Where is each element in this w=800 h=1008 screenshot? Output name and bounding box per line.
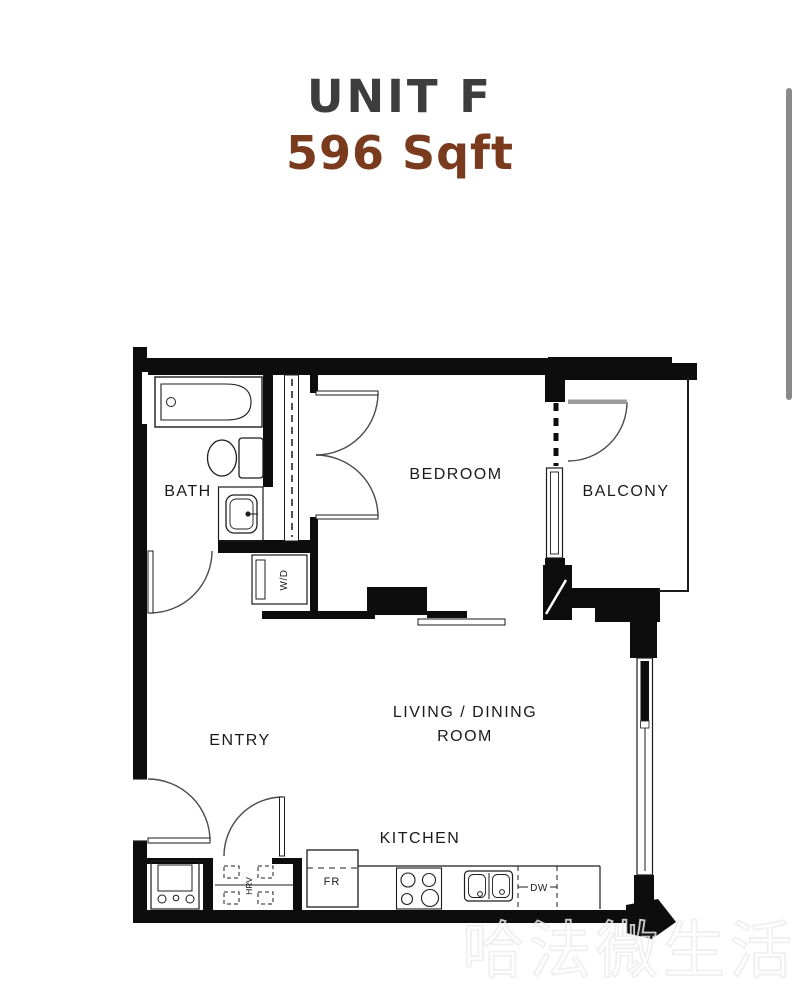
stove xyxy=(397,868,442,909)
room-label-living-dining-line2: ROOM xyxy=(437,728,493,745)
balcony-door-panel xyxy=(568,400,627,405)
room-label-kitchen: KITCHEN xyxy=(380,830,461,847)
kitchen-sink xyxy=(465,871,513,901)
hrv-door-swing xyxy=(224,797,283,856)
fixture-label-fr: FR xyxy=(324,876,341,888)
bathtub xyxy=(155,377,262,427)
toilet xyxy=(208,438,264,478)
living-room-window xyxy=(637,658,653,875)
fixture-label-wd: W/D xyxy=(279,570,290,591)
room-label-balcony: BALCONY xyxy=(583,483,670,500)
bathroom-sink xyxy=(219,487,264,541)
room-labels: BATH BEDROOM BALCONY ENTRY LIVING / DINI… xyxy=(164,466,669,895)
entry-door-panel xyxy=(148,838,210,843)
fixture-label-hrv: HRV xyxy=(244,877,254,895)
hrv-door-panel xyxy=(280,797,285,856)
bedroom-door-swing-top xyxy=(316,393,378,455)
kitchen-counter xyxy=(358,866,600,909)
entry-door-swing xyxy=(148,779,210,841)
scrollbar-thumb[interactable] xyxy=(786,88,792,400)
bedroom-window xyxy=(547,468,563,558)
room-label-living-dining-line1: LIVING / DINING xyxy=(393,704,537,721)
windows xyxy=(547,468,653,875)
floorplan: BATH BEDROOM BALCONY ENTRY LIVING / DINI… xyxy=(0,0,800,1008)
room-label-entry: ENTRY xyxy=(209,732,270,749)
pocket-wall xyxy=(285,375,299,541)
doors xyxy=(148,391,627,856)
fixtures xyxy=(151,377,600,909)
room-label-bath: BATH xyxy=(164,483,211,500)
balcony-door-swing xyxy=(568,402,627,461)
page: UNIT F 596 Sqft xyxy=(0,0,800,1008)
bedroom-door-panel-bottom xyxy=(316,515,378,519)
bedroom-door-panel-top xyxy=(316,391,378,395)
utility-closet-fixture xyxy=(151,861,199,909)
hrv-unit xyxy=(215,866,293,904)
bedroom-door-swing-bottom xyxy=(316,455,378,517)
bath-door-swing xyxy=(150,551,212,613)
walls xyxy=(133,347,697,939)
room-label-bedroom: BEDROOM xyxy=(409,466,502,483)
fixture-label-dw: DW xyxy=(530,883,548,894)
bath-door-panel xyxy=(148,551,153,613)
